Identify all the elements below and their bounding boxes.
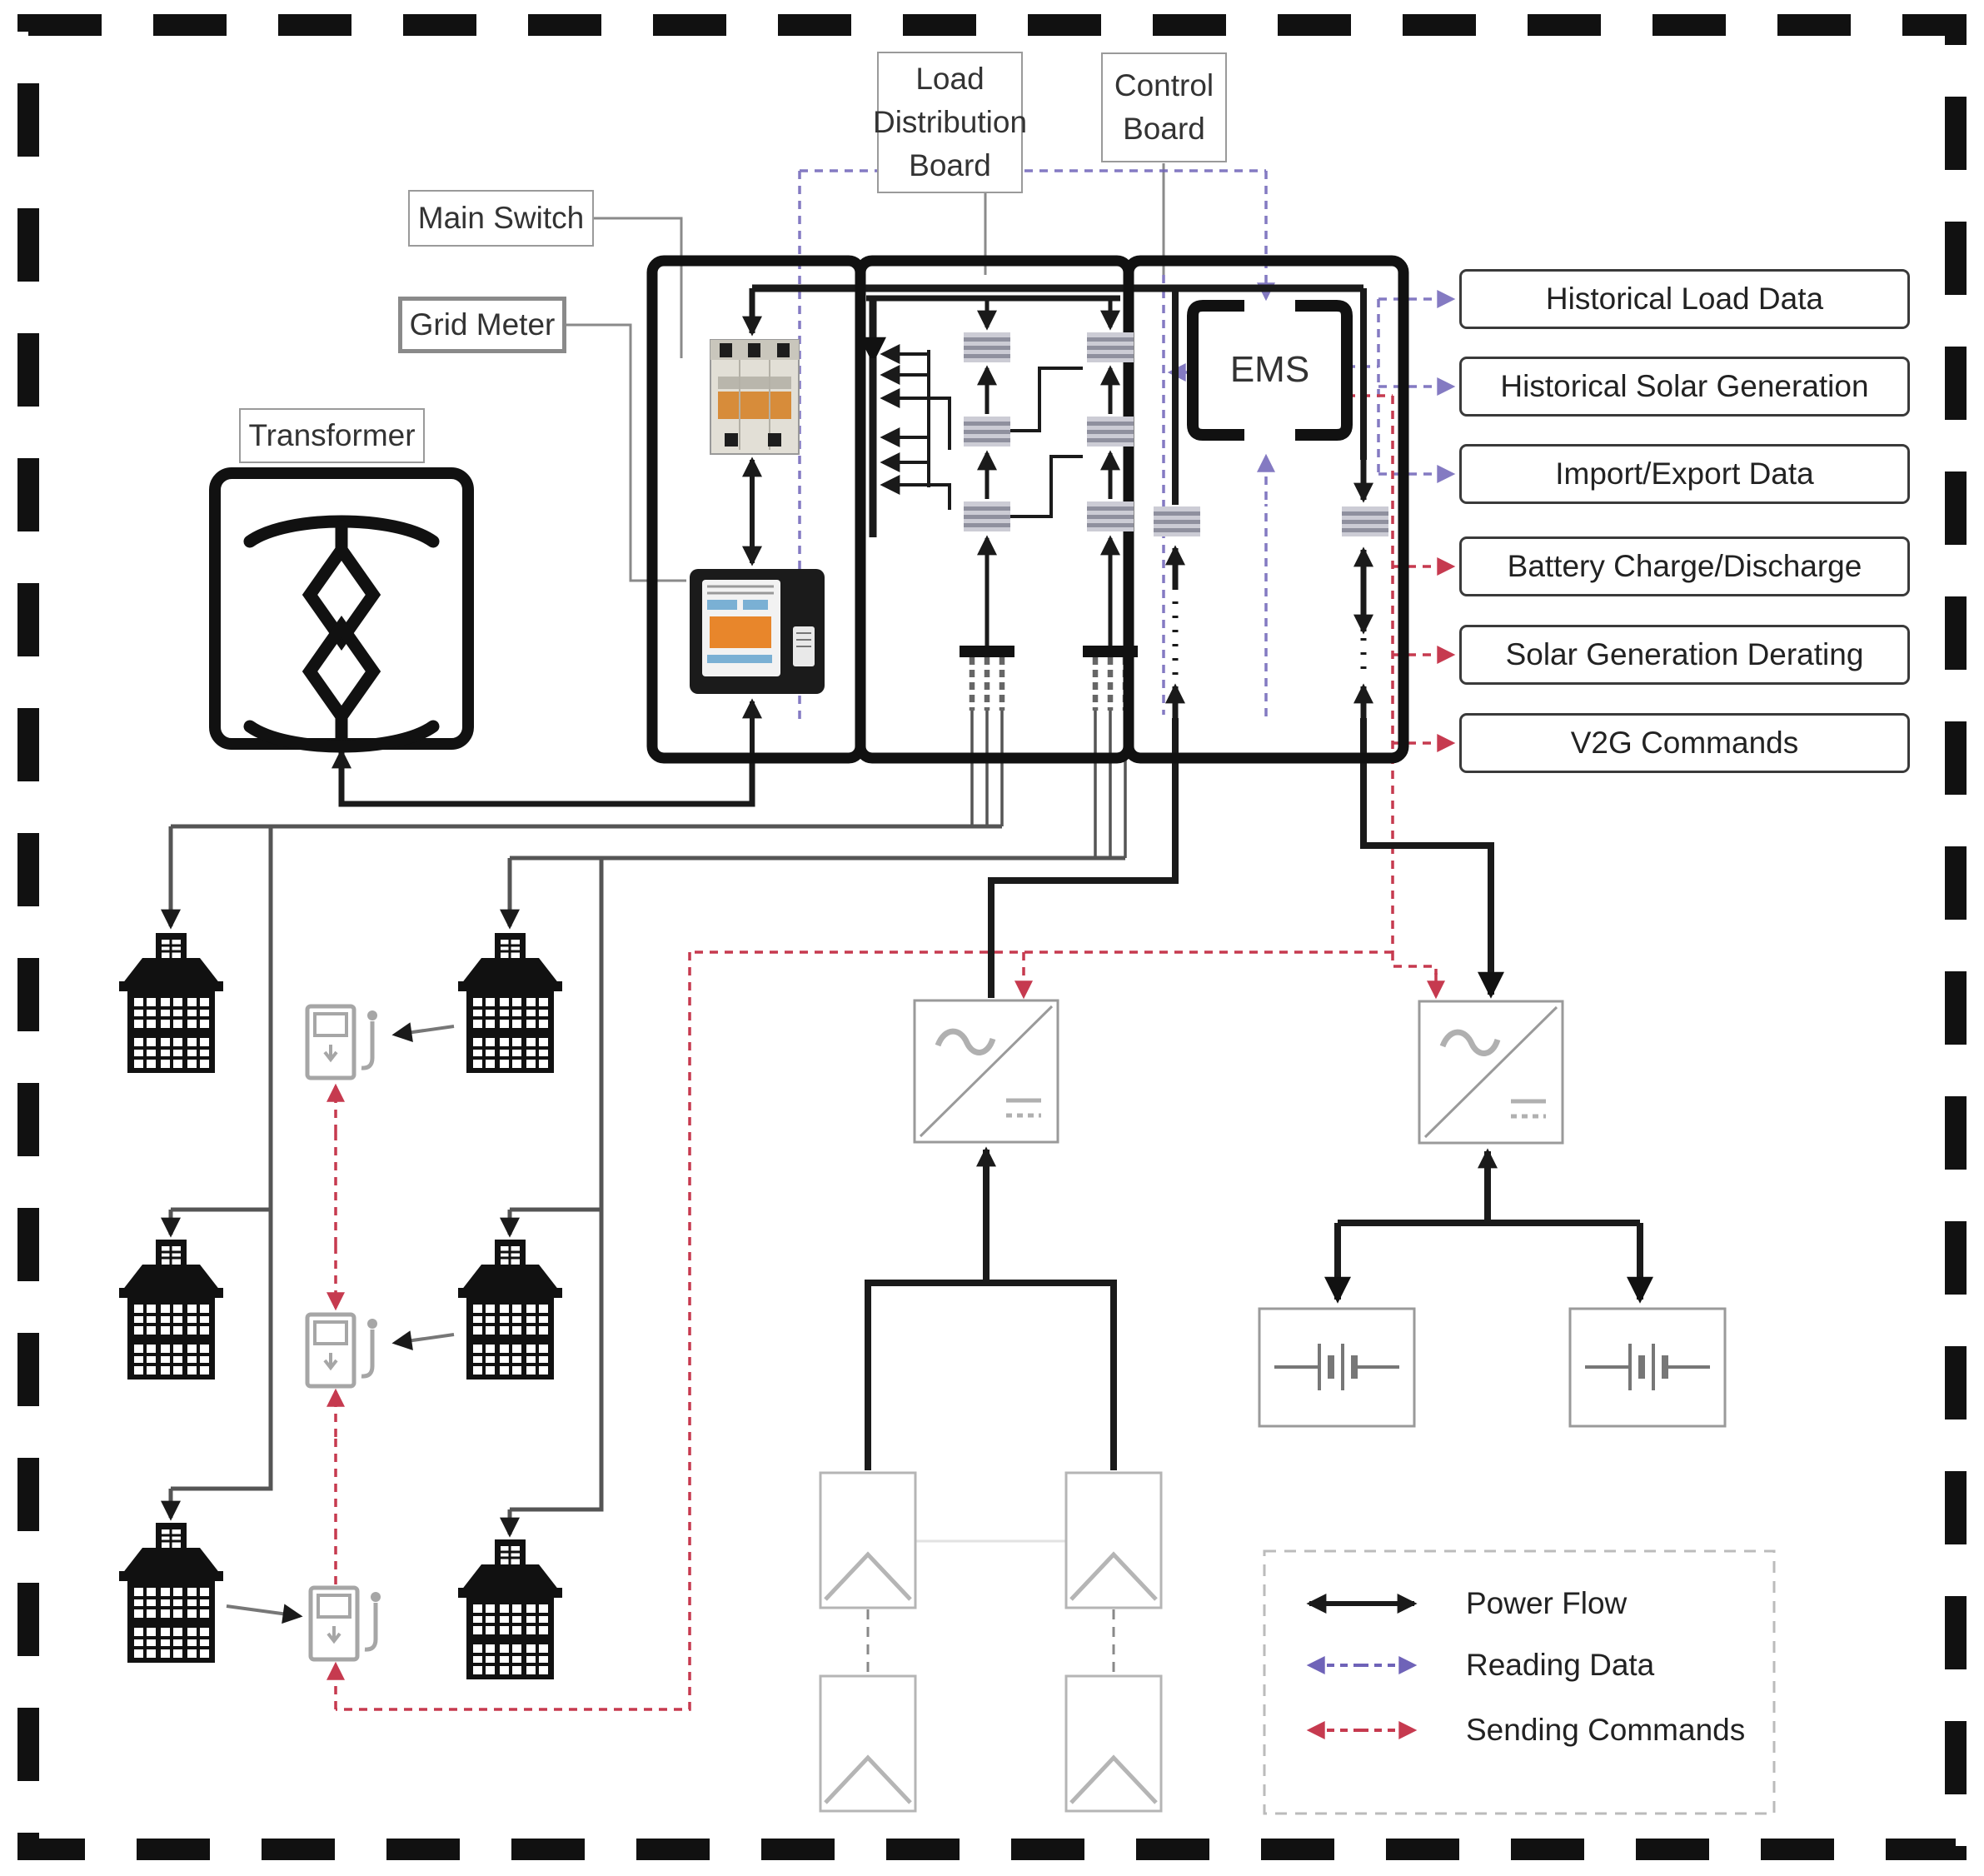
battery-icon — [1259, 1309, 1414, 1426]
transformer-box — [215, 473, 468, 746]
solar-inverter-icon — [915, 1000, 1058, 1142]
historical-solar-generation-box: Historical Solar Generation — [1459, 357, 1910, 417]
ems-label: EMS — [1193, 337, 1347, 403]
legend-reading-data-label: Reading Data — [1466, 1647, 1654, 1684]
legend-sending-commands-label: Sending Commands — [1466, 1712, 1745, 1749]
microgrid-diagram: Load Distribution Board Control Board Ma… — [0, 0, 1984, 1876]
house-icon — [458, 933, 562, 1073]
three-phase-bundles — [960, 646, 1138, 858]
v2g-commands-box: V2G Commands — [1459, 713, 1910, 773]
solar-panel-icon — [820, 1676, 915, 1811]
house-feeder-lines — [171, 826, 1125, 1534]
grid-meter-label: Grid Meter — [398, 297, 566, 353]
ev-charger-icons — [307, 1006, 381, 1659]
control-board-label: Control Board — [1101, 52, 1227, 162]
ev-charger-icon — [311, 1588, 381, 1659]
battery-inverter-icon — [1419, 1001, 1563, 1143]
house-icon — [119, 1240, 223, 1380]
ev-charger-icon — [307, 1006, 377, 1078]
battery-icon — [1570, 1309, 1725, 1426]
load-distribution-board-label: Load Distribution Board — [877, 52, 1023, 193]
ev-charger-icon — [307, 1315, 377, 1386]
solar-panel-icon — [820, 1473, 915, 1608]
transformer-icon — [250, 521, 433, 746]
solar-panel-icon — [1066, 1473, 1161, 1608]
grid-meter-device-icon — [690, 569, 825, 694]
house-icon — [458, 1240, 562, 1380]
house-icon — [458, 1539, 562, 1679]
main-switch-device-icon — [710, 340, 799, 454]
legend-power-flow-label: Power Flow — [1466, 1585, 1627, 1622]
historical-load-data-box: Historical Load Data — [1459, 269, 1910, 329]
solar-panel-icon — [1066, 1676, 1161, 1811]
main-switch-label: Main Switch — [408, 190, 594, 247]
house-icon — [119, 933, 223, 1073]
solar-panel-icons — [820, 1473, 1161, 1811]
import-export-data-box: Import/Export Data — [1459, 444, 1910, 504]
transformer-label: Transformer — [239, 408, 425, 463]
house-icon — [119, 1523, 223, 1663]
solar-generation-derating-box: Solar Generation Derating — [1459, 625, 1910, 685]
battery-charge-discharge-box: Battery Charge/Discharge — [1459, 536, 1910, 596]
